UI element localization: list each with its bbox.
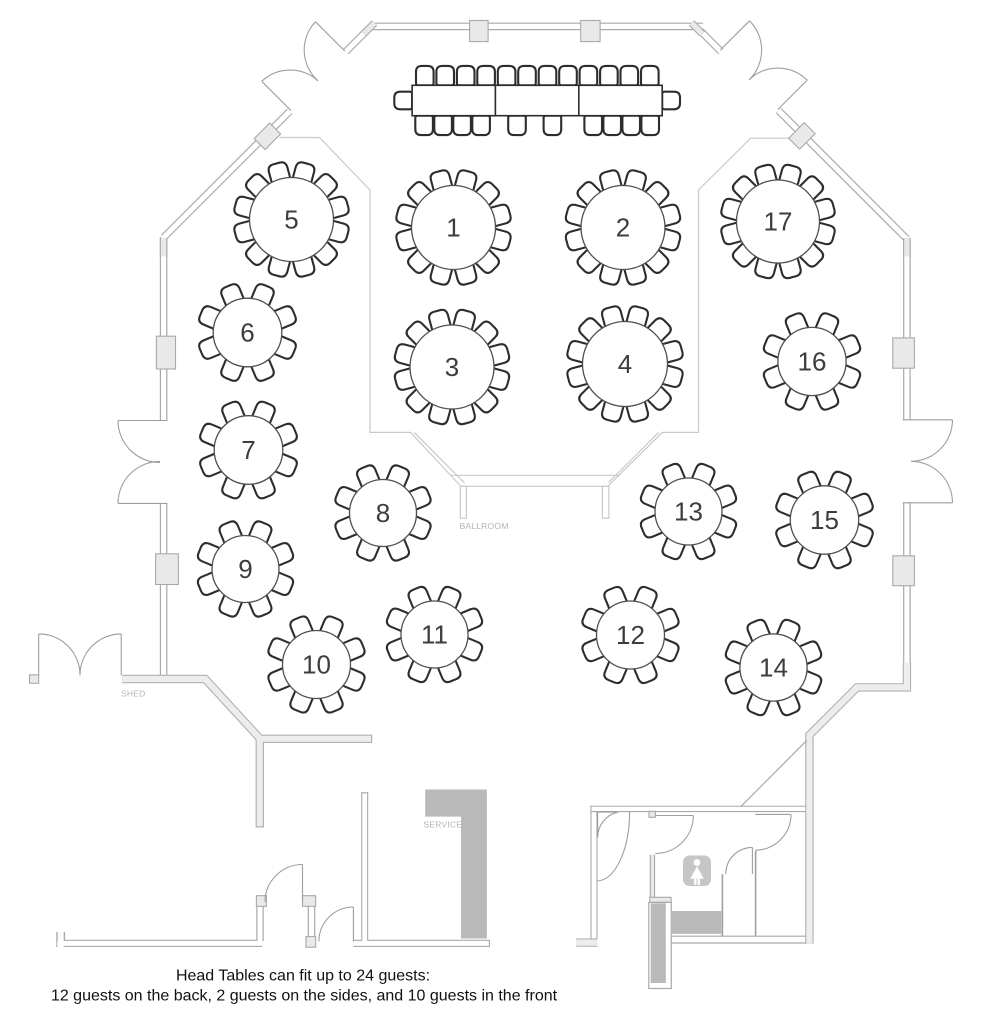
svg-text:Head Tables can fit up to 24 g: Head Tables can fit up to 24 guests:	[176, 968, 430, 985]
svg-text:12: 12	[616, 620, 645, 650]
svg-text:16: 16	[798, 347, 827, 377]
svg-text:3: 3	[445, 352, 459, 382]
svg-text:BALLROOM: BALLROOM	[460, 521, 509, 531]
svg-text:12 guests on the back, 2 guest: 12 guests on the back, 2 guests on the s…	[51, 988, 558, 1005]
svg-text:4: 4	[618, 349, 632, 379]
svg-text:SHED: SHED	[121, 689, 145, 699]
svg-text:8: 8	[376, 498, 390, 528]
svg-text:9: 9	[238, 554, 252, 584]
svg-text:10: 10	[302, 650, 331, 680]
svg-text:17: 17	[764, 207, 793, 237]
svg-text:15: 15	[810, 505, 839, 535]
svg-text:11: 11	[421, 620, 448, 650]
svg-text:7: 7	[241, 435, 255, 465]
svg-text:SERVICE: SERVICE	[424, 820, 463, 830]
svg-text:14: 14	[759, 653, 788, 683]
svg-text:5: 5	[284, 205, 298, 235]
svg-text:1: 1	[446, 213, 460, 243]
svg-text:2: 2	[616, 213, 630, 243]
svg-text:6: 6	[240, 318, 254, 348]
svg-text:13: 13	[674, 497, 703, 527]
